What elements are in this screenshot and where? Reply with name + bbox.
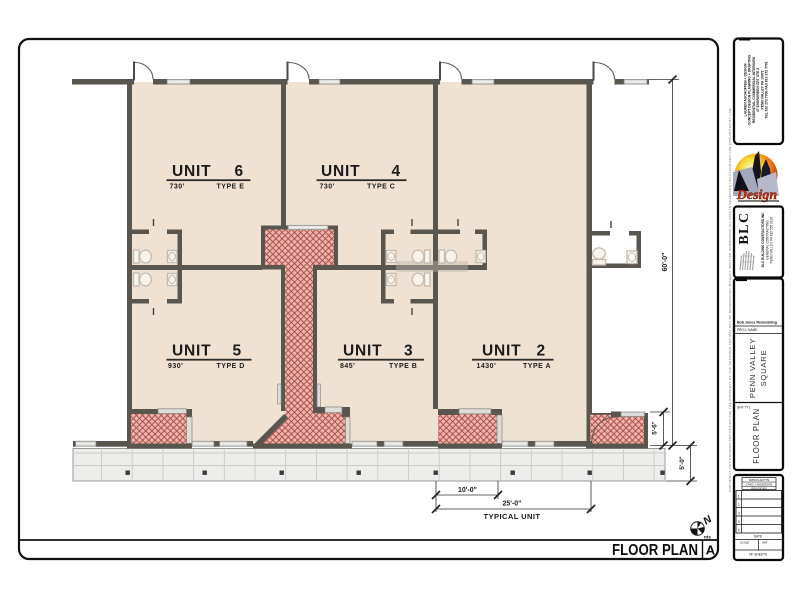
svg-text:OF SHEETS: OF SHEETS xyxy=(749,553,767,557)
svg-text:nts: nts xyxy=(704,535,711,540)
svg-text:730': 730' xyxy=(170,183,185,190)
svg-text:FLOOR PLAN: FLOOR PLAN xyxy=(612,542,698,559)
svg-text:5'-6": 5'-6" xyxy=(652,421,659,434)
svg-text:SCALE: SCALE xyxy=(740,541,749,545)
svg-text:UNIT: UNIT xyxy=(172,163,211,180)
svg-text:4: 4 xyxy=(738,520,740,524)
svg-text:TYPE D: TYPE D xyxy=(217,363,245,370)
svg-text:PROJ / NAME: PROJ / NAME xyxy=(737,328,757,332)
svg-text:845': 845' xyxy=(340,363,355,370)
svg-text:10'-0": 10'-0" xyxy=(458,487,477,494)
svg-text:4: 4 xyxy=(392,163,401,180)
svg-text:1: 1 xyxy=(738,495,740,499)
svg-text:UNIT: UNIT xyxy=(482,343,521,360)
svg-text:COPYRIGHT THIS DRAWING AND DES: COPYRIGHT THIS DRAWING AND DESIGN ARE TH… xyxy=(728,108,732,492)
svg-text:930': 930' xyxy=(168,363,183,370)
svg-text:2: 2 xyxy=(537,343,546,360)
svg-text:TYPE B: TYPE B xyxy=(389,363,417,370)
svg-text:SHT TTL: SHT TTL xyxy=(737,406,751,410)
svg-text:BLC BUILDING CONTRACTORS INC: BLC BUILDING CONTRACTORS INC xyxy=(761,212,765,268)
svg-text:UNIT: UNIT xyxy=(172,343,211,360)
svg-text:PENN VALLEY PA 610 555 0192: PENN VALLEY PA 610 555 0192 xyxy=(770,216,774,263)
svg-text:6: 6 xyxy=(235,163,244,180)
svg-text:5'-0": 5'-0" xyxy=(679,456,686,469)
svg-text:REVISIONS: REVISIONS xyxy=(751,486,766,490)
svg-text:Bob Jones Remodeling: Bob Jones Remodeling xyxy=(737,321,777,325)
svg-text:3: 3 xyxy=(404,343,413,360)
svg-text:1430': 1430' xyxy=(477,363,497,370)
svg-text:25'-0": 25'-0" xyxy=(503,501,522,508)
svg-text:3: 3 xyxy=(738,512,740,516)
svg-text:5: 5 xyxy=(738,529,740,533)
svg-text:60'-0": 60'-0" xyxy=(662,253,669,272)
svg-text:SQUARE: SQUARE xyxy=(759,350,768,387)
svg-text:TYPICAL UNIT: TYPICAL UNIT xyxy=(484,512,541,521)
svg-text:BLC: BLC xyxy=(737,211,752,244)
svg-text:TEL 610 272 7700 FAX 610 272: TEL 610 272 7700 FAX 610 272 7701 xyxy=(765,61,769,118)
svg-text:TYPE E: TYPE E xyxy=(217,183,245,190)
svg-text:SHT: SHT xyxy=(762,541,768,545)
svg-text:UNIT: UNIT xyxy=(321,163,360,180)
svg-text:PENN VALLEY: PENN VALLEY xyxy=(748,338,757,398)
svg-text:TYPE A: TYPE A xyxy=(523,363,551,370)
svg-text:730': 730' xyxy=(320,183,335,190)
svg-text:DATE: DATE xyxy=(754,535,762,539)
svg-text:A: A xyxy=(706,543,716,558)
svg-text:5: 5 xyxy=(233,343,242,360)
svg-text:2: 2 xyxy=(738,503,740,507)
svg-text:UNIT: UNIT xyxy=(343,343,382,360)
svg-text:TYPE C: TYPE C xyxy=(367,183,395,190)
svg-text:FLOOR PLAN: FLOOR PLAN xyxy=(752,408,761,463)
